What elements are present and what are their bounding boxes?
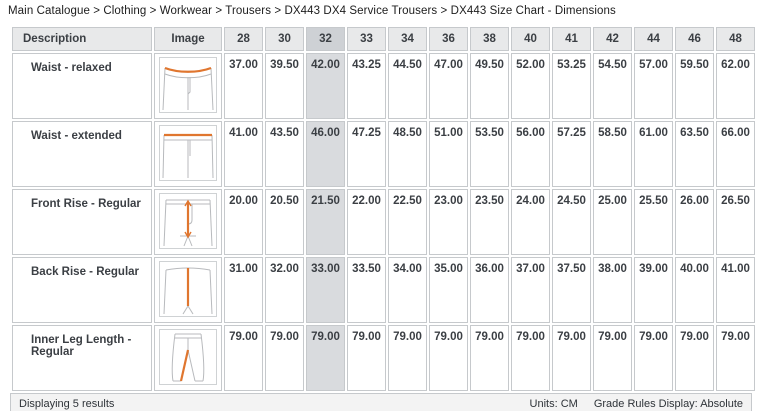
cell-value: 79.00 <box>511 325 550 391</box>
cell-value: 79.00 <box>265 325 304 391</box>
cell-value: 24.00 <box>511 189 550 255</box>
cell-value: 25.50 <box>634 189 673 255</box>
cell-value: 48.50 <box>388 121 427 187</box>
cell-value: 37.00 <box>511 257 550 323</box>
column-header-size-34[interactable]: 34 <box>388 27 427 51</box>
cell-value: 53.50 <box>470 121 509 187</box>
trousers-inner-leg-icon <box>159 329 217 385</box>
cell-value: 79.00 <box>552 325 591 391</box>
column-header-size-48[interactable]: 48 <box>716 27 755 51</box>
row-image-cell <box>154 257 222 323</box>
trousers-waist-relaxed-icon <box>159 57 217 113</box>
cell-value: 44.50 <box>388 53 427 119</box>
cell-value: 23.00 <box>429 189 468 255</box>
cell-value: 20.00 <box>224 189 263 255</box>
cell-value: 79.00 <box>224 325 263 391</box>
cell-value-selected: 46.00 <box>306 121 345 187</box>
cell-value-selected: 42.00 <box>306 53 345 119</box>
cell-value: 31.00 <box>224 257 263 323</box>
cell-value: 57.25 <box>552 121 591 187</box>
row-description: Front Rise - Regular <box>12 189 152 255</box>
grade-rules-label: Grade Rules Display: Absolute <box>594 398 743 410</box>
column-header-size-41[interactable]: 41 <box>552 27 591 51</box>
column-header-size-40[interactable]: 40 <box>511 27 550 51</box>
cell-value: 79.00 <box>593 325 632 391</box>
units-label: Units: CM <box>530 398 578 410</box>
cell-value: 35.00 <box>429 257 468 323</box>
column-header-description: Description <box>12 27 152 51</box>
column-header-size-36[interactable]: 36 <box>429 27 468 51</box>
cell-value: 41.00 <box>224 121 263 187</box>
column-header-size-32-selected[interactable]: 32 <box>306 27 345 51</box>
cell-value: 20.50 <box>265 189 304 255</box>
cell-value-selected: 79.00 <box>306 325 345 391</box>
column-header-size-44[interactable]: 44 <box>634 27 673 51</box>
column-header-size-30[interactable]: 30 <box>265 27 304 51</box>
cell-value: 79.00 <box>634 325 673 391</box>
table-row-waist-relaxed: Waist - relaxed 37.00 39.50 42.00 43.25 … <box>12 53 755 119</box>
cell-value: 26.00 <box>675 189 714 255</box>
row-description: Waist - relaxed <box>12 53 152 119</box>
cell-value: 39.00 <box>634 257 673 323</box>
table-row-back-rise: Back Rise - Regular 31.00 32.00 33.00 33… <box>12 257 755 323</box>
cell-value: 59.50 <box>675 53 714 119</box>
cell-value: 22.00 <box>347 189 386 255</box>
table-row-front-rise: Front Rise - Regular 20.00 20. <box>12 189 755 255</box>
size-chart-table: Description Image 28 30 32 33 34 36 38 4… <box>10 25 757 393</box>
cell-value: 62.00 <box>716 53 755 119</box>
cell-value: 33.50 <box>347 257 386 323</box>
size-chart-panel: Description Image 28 30 32 33 34 36 38 4… <box>10 25 752 411</box>
trousers-waist-extended-icon <box>159 125 217 181</box>
cell-value: 22.50 <box>388 189 427 255</box>
cell-value: 41.00 <box>716 257 755 323</box>
column-header-size-28[interactable]: 28 <box>224 27 263 51</box>
breadcrumb[interactable]: Main Catalogue > Clothing > Workwear > T… <box>0 0 762 17</box>
cell-value: 37.00 <box>224 53 263 119</box>
cell-value: 24.50 <box>552 189 591 255</box>
cell-value: 56.00 <box>511 121 550 187</box>
header-row: Description Image 28 30 32 33 34 36 38 4… <box>12 27 755 51</box>
cell-value: 52.00 <box>511 53 550 119</box>
cell-value: 63.50 <box>675 121 714 187</box>
cell-value: 79.00 <box>347 325 386 391</box>
column-header-size-42[interactable]: 42 <box>593 27 632 51</box>
trousers-front-rise-icon <box>159 193 217 249</box>
cell-value: 34.00 <box>388 257 427 323</box>
cell-value: 25.00 <box>593 189 632 255</box>
row-description: Waist - extended <box>12 121 152 187</box>
cell-value: 79.00 <box>388 325 427 391</box>
row-image-cell <box>154 189 222 255</box>
cell-value: 38.00 <box>593 257 632 323</box>
cell-value: 58.50 <box>593 121 632 187</box>
cell-value: 66.00 <box>716 121 755 187</box>
table-footer-bar: Displaying 5 results Units: CM Grade Rul… <box>10 393 752 411</box>
results-count: Displaying 5 results <box>19 398 114 410</box>
cell-value: 79.00 <box>429 325 468 391</box>
cell-value: 23.50 <box>470 189 509 255</box>
row-image-cell <box>154 325 222 391</box>
cell-value: 79.00 <box>716 325 755 391</box>
cell-value: 40.00 <box>675 257 714 323</box>
cell-value: 47.00 <box>429 53 468 119</box>
row-image-cell <box>154 53 222 119</box>
trousers-back-rise-icon <box>159 261 217 317</box>
cell-value: 43.50 <box>265 121 304 187</box>
cell-value: 57.00 <box>634 53 673 119</box>
column-header-size-38[interactable]: 38 <box>470 27 509 51</box>
cell-value: 54.50 <box>593 53 632 119</box>
cell-value: 37.50 <box>552 257 591 323</box>
cell-value: 49.50 <box>470 53 509 119</box>
cell-value: 79.00 <box>470 325 509 391</box>
cell-value-selected: 21.50 <box>306 189 345 255</box>
cell-value: 61.00 <box>634 121 673 187</box>
row-description: Back Rise - Regular <box>12 257 152 323</box>
cell-value: 39.50 <box>265 53 304 119</box>
cell-value: 53.25 <box>552 53 591 119</box>
cell-value: 32.00 <box>265 257 304 323</box>
cell-value: 51.00 <box>429 121 468 187</box>
column-header-image: Image <box>154 27 222 51</box>
table-row-waist-extended: Waist - extended 41.00 43.50 46.00 47.25… <box>12 121 755 187</box>
row-description: Inner Leg Length - Regular <box>12 325 152 391</box>
cell-value-selected: 33.00 <box>306 257 345 323</box>
cell-value: 26.50 <box>716 189 755 255</box>
cell-value: 79.00 <box>675 325 714 391</box>
cell-value: 47.25 <box>347 121 386 187</box>
row-image-cell <box>154 121 222 187</box>
column-header-size-46[interactable]: 46 <box>675 27 714 51</box>
column-header-size-33[interactable]: 33 <box>347 27 386 51</box>
cell-value: 36.00 <box>470 257 509 323</box>
table-row-inner-leg-length: Inner Leg Length - Regular 79.00 79.00 <box>12 325 755 391</box>
cell-value: 43.25 <box>347 53 386 119</box>
